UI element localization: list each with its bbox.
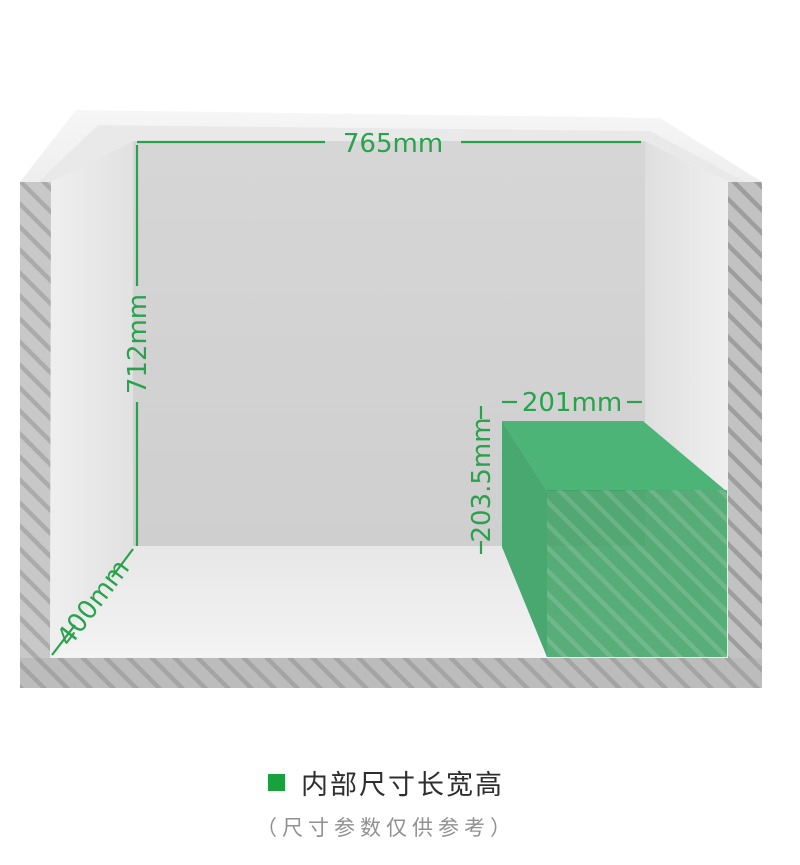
dim-height-label: 712mm — [123, 294, 153, 394]
caption-title-row: 内部尺寸长宽高 — [0, 763, 786, 802]
dim-box-width-label: 201mm — [522, 388, 622, 418]
interior-dimension-diagram: 765mm 712mm 400mm 201mm 203.5mm 内部尺寸长宽高 … — [0, 0, 800, 865]
left-wall-hatch — [20, 182, 52, 658]
dim-width-label: 765mm — [343, 129, 443, 159]
bottom-wall-hatch — [20, 658, 762, 688]
caption-subtitle: （尺寸参数仅供参考） — [0, 812, 786, 842]
box-front-face-hatch — [547, 490, 727, 657]
dim-box-height-label: 203.5mm — [467, 417, 497, 542]
caption-title: 内部尺寸长宽高 — [301, 763, 504, 802]
right-wall-hatch — [728, 182, 762, 658]
caption: 内部尺寸长宽高 （尺寸参数仅供参考） — [0, 763, 786, 842]
green-square-bullet-icon — [268, 774, 285, 791]
cabinet-interior-drawing: 765mm 712mm 400mm 201mm 203.5mm — [0, 0, 800, 740]
